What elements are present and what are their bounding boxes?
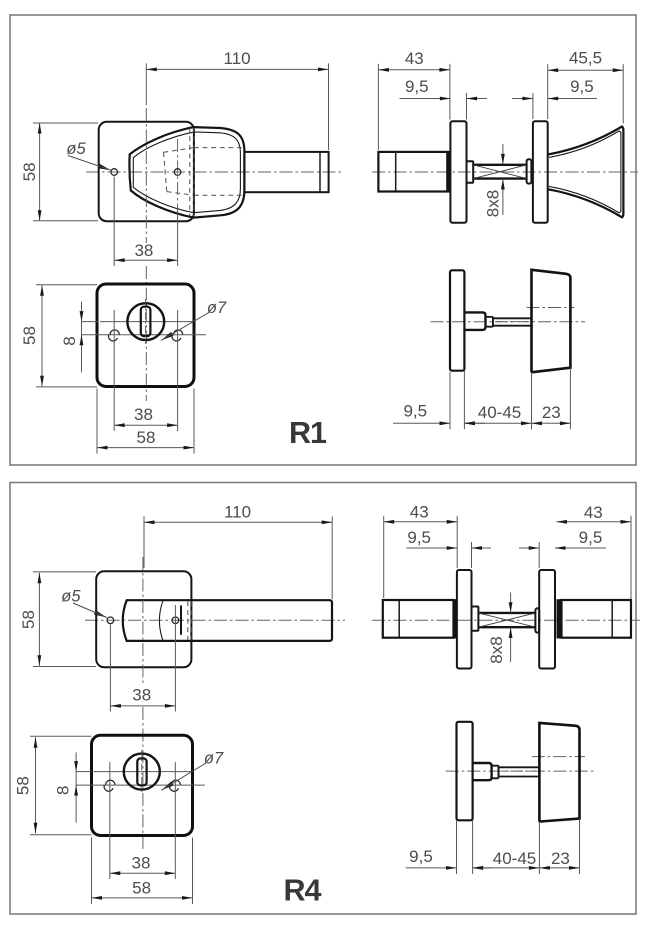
svg-text:58: 58	[137, 428, 156, 447]
svg-text:ø7: ø7	[207, 299, 227, 317]
svg-text:8x8: 8x8	[484, 190, 503, 217]
svg-text:9,5: 9,5	[570, 77, 594, 96]
svg-text:ø5: ø5	[66, 140, 86, 158]
svg-text:8: 8	[60, 336, 79, 345]
svg-text:9,5: 9,5	[409, 847, 433, 866]
svg-text:43: 43	[584, 503, 603, 522]
svg-text:58: 58	[132, 879, 151, 898]
svg-text:110: 110	[224, 502, 251, 521]
svg-text:38: 38	[134, 241, 153, 260]
svg-text:58: 58	[19, 610, 38, 629]
svg-text:ø5: ø5	[61, 588, 81, 606]
svg-text:23: 23	[551, 849, 570, 868]
svg-text:38: 38	[132, 854, 151, 873]
svg-text:8: 8	[54, 786, 73, 795]
svg-text:58: 58	[20, 162, 39, 181]
svg-text:9,5: 9,5	[579, 528, 603, 547]
svg-text:8x8: 8x8	[487, 636, 506, 663]
svg-text:R4: R4	[284, 874, 322, 908]
svg-text:23: 23	[542, 403, 561, 422]
svg-text:110: 110	[223, 49, 250, 68]
svg-text:45,5: 45,5	[569, 49, 602, 68]
svg-text:ø7: ø7	[204, 750, 224, 768]
svg-text:43: 43	[410, 502, 429, 521]
svg-text:40-45: 40-45	[493, 849, 536, 868]
svg-text:9,5: 9,5	[405, 77, 429, 96]
svg-text:9,5: 9,5	[407, 528, 431, 547]
svg-text:40-45: 40-45	[478, 403, 521, 422]
svg-text:38: 38	[132, 685, 151, 704]
svg-text:R1: R1	[289, 416, 327, 450]
svg-text:58: 58	[20, 326, 39, 345]
svg-text:9,5: 9,5	[403, 402, 427, 421]
svg-text:58: 58	[14, 776, 33, 795]
svg-text:43: 43	[405, 49, 424, 68]
svg-text:38: 38	[134, 405, 153, 424]
